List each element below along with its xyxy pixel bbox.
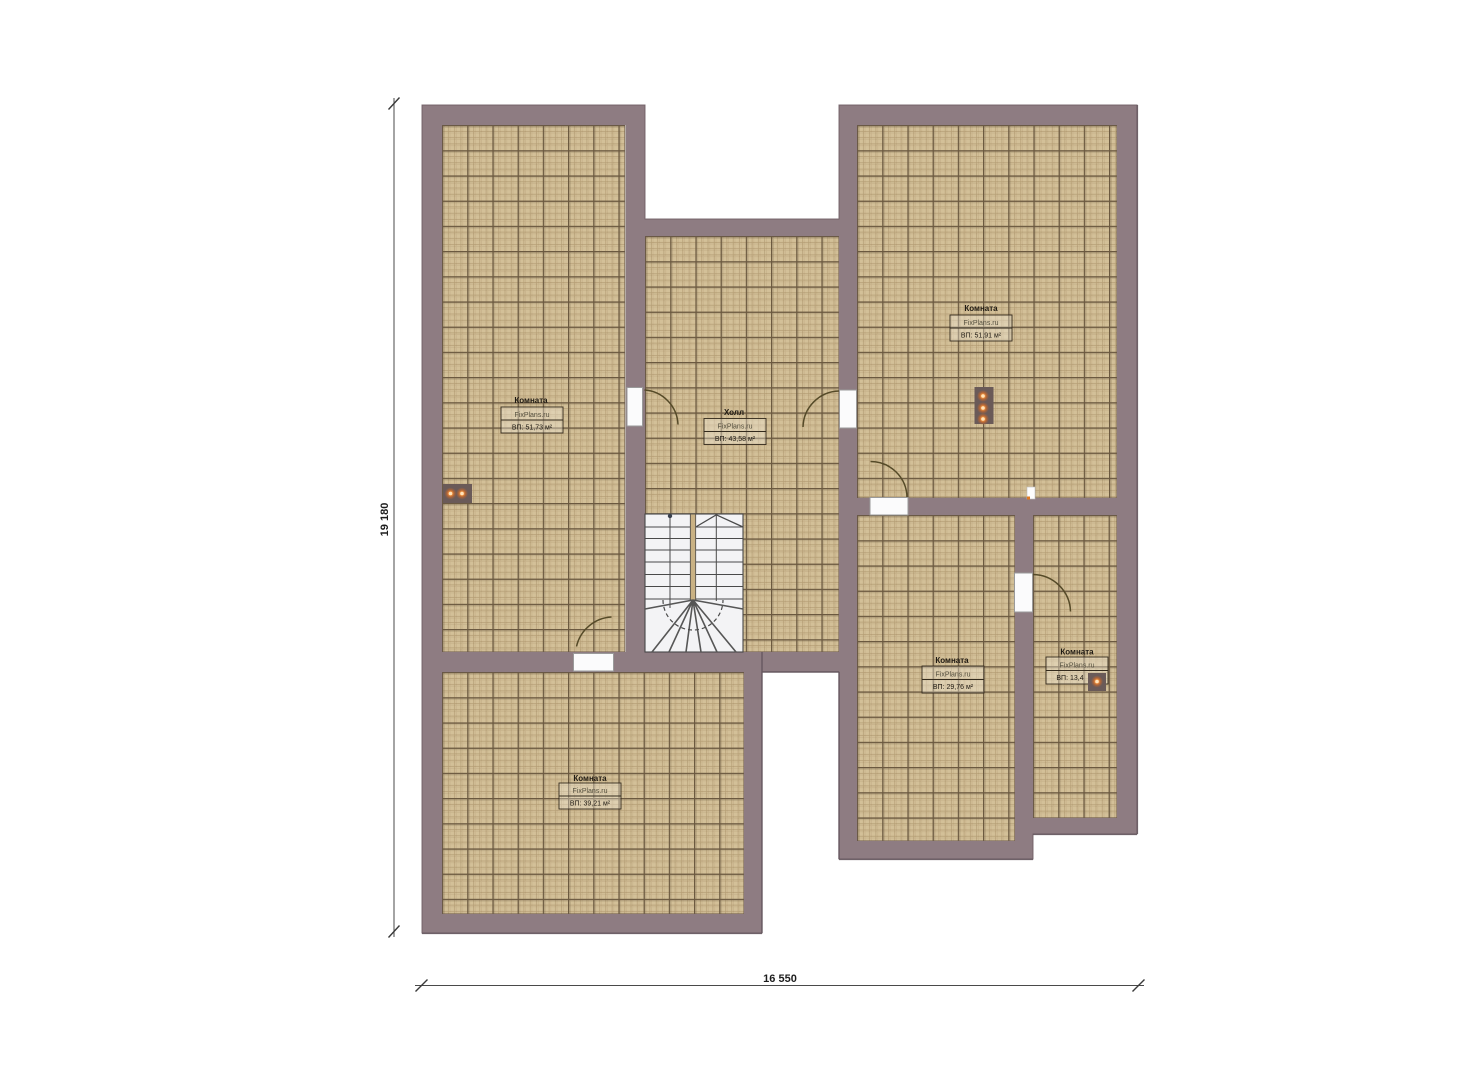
svg-text:FixPlans.ru: FixPlans.ru	[572, 788, 607, 795]
svg-text:ВП: 43,58 м²: ВП: 43,58 м²	[715, 436, 756, 443]
svg-text:19 180: 19 180	[379, 503, 391, 537]
svg-text:FixPlans.ru: FixPlans.ru	[935, 672, 970, 679]
svg-text:Комната: Комната	[1060, 648, 1094, 657]
svg-text:ВП: 29,76 м²: ВП: 29,76 м²	[933, 684, 974, 691]
svg-text:ВП: 51,73 м²: ВП: 51,73 м²	[512, 425, 553, 432]
svg-text:ВП: 39,21 м²: ВП: 39,21 м²	[570, 801, 611, 808]
svg-text:FixPlans.ru: FixPlans.ru	[963, 320, 998, 327]
svg-text:Холл: Холл	[724, 408, 744, 417]
svg-text:16 550: 16 550	[763, 973, 797, 985]
svg-text:ВП: 51,91 м²: ВП: 51,91 м²	[961, 333, 1002, 340]
svg-text:FixPlans.ru: FixPlans.ru	[514, 412, 549, 419]
svg-text:Комната: Комната	[935, 656, 969, 665]
svg-text:Комната: Комната	[514, 396, 548, 405]
svg-text:Комната: Комната	[573, 774, 607, 783]
svg-text:Комната: Комната	[964, 304, 998, 313]
svg-text:ВП: 13,4: ВП: 13,4	[1056, 675, 1083, 682]
svg-text:FixPlans.ru: FixPlans.ru	[717, 424, 752, 431]
svg-text:FixPlans.ru: FixPlans.ru	[1059, 663, 1094, 670]
